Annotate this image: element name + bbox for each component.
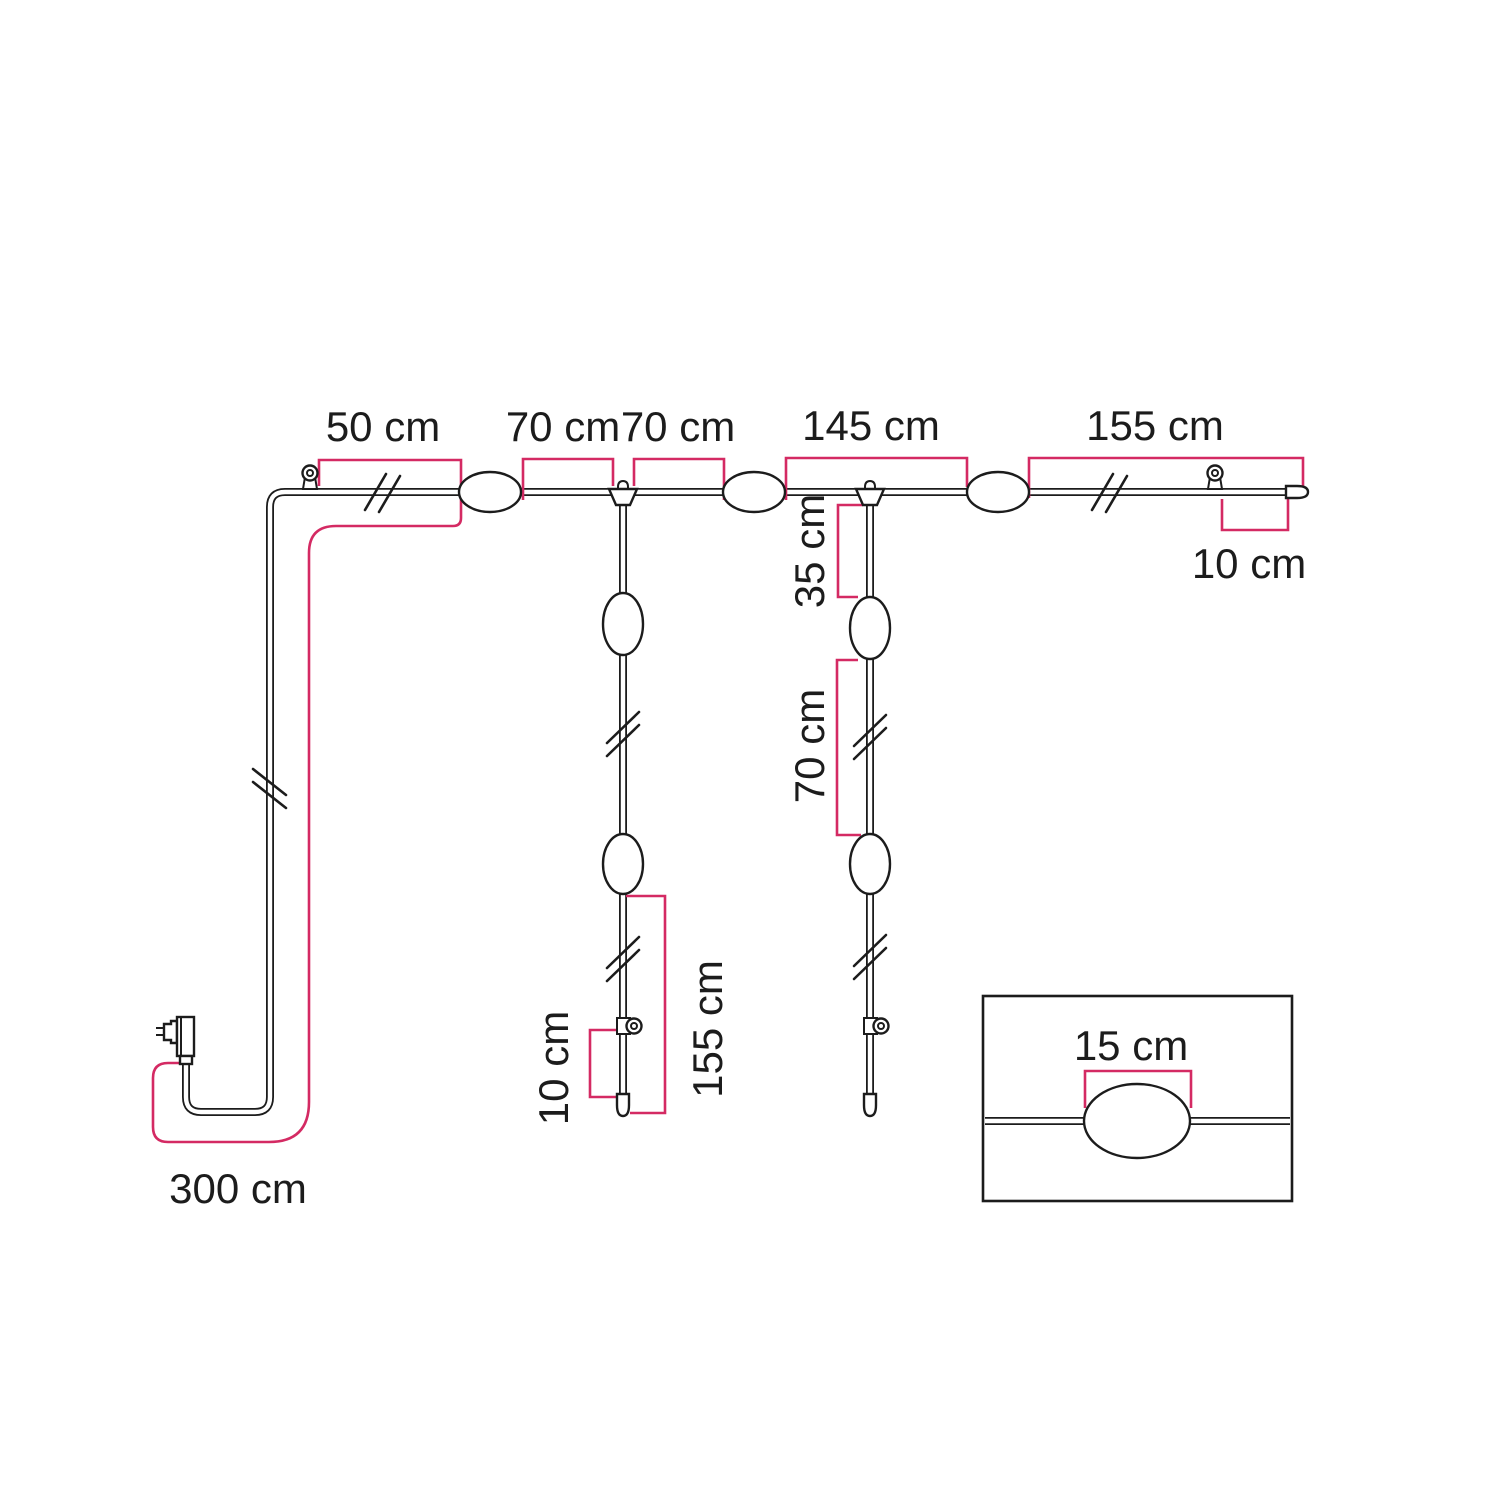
label-70cm-vertical: 70 cm xyxy=(786,689,833,803)
label-10cm-right: 10 cm xyxy=(1192,540,1306,587)
anchor-eyelet-icon xyxy=(617,1018,642,1034)
label-155cm: 155 cm xyxy=(1086,402,1224,449)
anchor-eyelet-icon xyxy=(864,1018,889,1034)
lamp-holders xyxy=(459,472,1029,894)
string-light-dimension-diagram: 50 cm 70 cm 70 cm 145 cm 155 cm 10 cm 30… xyxy=(0,0,1500,1500)
label-35cm-vertical: 35 cm xyxy=(786,494,833,608)
measure-10cm-right-bracket xyxy=(1222,499,1288,530)
label-70cm-b: 70 cm xyxy=(621,403,735,450)
lamp-oval xyxy=(723,472,785,512)
label-155cm-drop: 155 cm xyxy=(684,960,731,1098)
measure-10cm-drop-bracket xyxy=(590,1030,617,1097)
measure-155cm-drop-bracket xyxy=(626,896,665,1113)
end-cap xyxy=(617,1094,629,1116)
lamp-oval xyxy=(850,597,890,659)
lamp-oval xyxy=(603,834,643,894)
lamp-oval-detail xyxy=(1084,1084,1190,1158)
diagram-canvas: 50 cm 70 cm 70 cm 145 cm 155 cm 10 cm 30… xyxy=(0,0,1500,1500)
end-cap xyxy=(864,1094,876,1116)
t-junction xyxy=(856,481,884,505)
lamp-oval xyxy=(459,472,521,512)
anchor-eyelet-icon xyxy=(1208,466,1223,490)
lamp-oval xyxy=(603,593,643,655)
power-plug-icon xyxy=(156,1017,194,1064)
measure-70cm-drop-bracket xyxy=(837,660,861,835)
label-15cm: 15 cm xyxy=(1074,1022,1188,1069)
lamp-oval xyxy=(850,834,890,894)
measure-50cm-and-300cm-path xyxy=(153,460,461,1142)
measure-35cm-bracket xyxy=(838,505,863,597)
end-cap xyxy=(1286,486,1308,498)
label-70cm-a: 70 cm xyxy=(506,403,620,450)
cable-break-marks xyxy=(253,474,1127,981)
label-300cm: 300 cm xyxy=(169,1165,307,1212)
label-50cm: 50 cm xyxy=(326,403,440,450)
anchor-eyelet-icon xyxy=(303,466,318,490)
label-145cm: 145 cm xyxy=(802,402,940,449)
lamp-oval xyxy=(967,472,1029,512)
label-10cm-drop: 10 cm xyxy=(530,1011,577,1125)
